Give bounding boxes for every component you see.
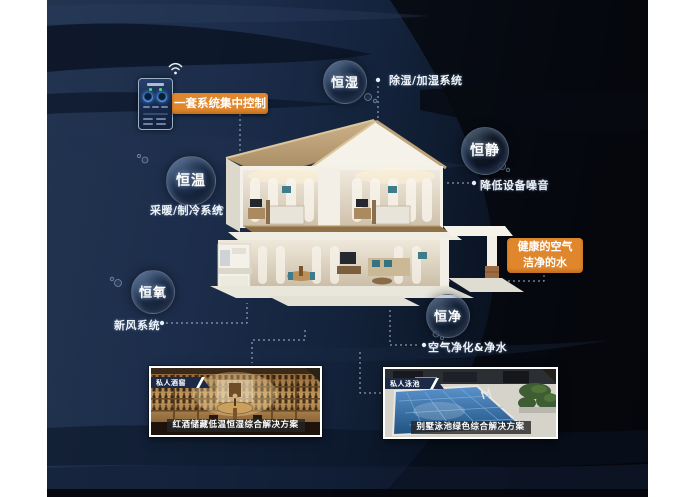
status-led [149,88,152,91]
bubble-purity-label: 恒净 [434,306,462,325]
house-porch [443,226,513,286]
house-floor-slab [228,226,462,240]
bubble-purity: 恒净 [426,294,470,338]
panel-title-bar [147,83,164,86]
panel-row [143,106,150,108]
panel-row [143,118,153,120]
panel-divider [143,113,168,115]
status-led [159,88,162,91]
infographic-stage: 一套系统集中控制 健康的空气 洁净的水 恒湿 恒静 恒温 恒氧 恒净 除湿/加湿… [0,0,700,497]
central-control-label: 一套系统集中控制 [174,96,266,110]
central-control-badge: 一套系统集中控制 [172,93,268,114]
dial-knob-left [143,92,153,102]
wine-card-caption: 红酒储藏低温恒湿综合解决方案 [166,419,304,432]
panel-row [152,106,159,108]
house-first-floor [218,238,449,290]
callout-purity: 空气净化&净水 [428,339,507,355]
callout-quiet: 降低设备噪音 [480,177,549,193]
bubble-quiet: 恒静 [461,127,509,175]
callout-humidity: 除湿/加湿系统 [389,72,463,88]
healthy-air-line1: 健康的空气 [507,239,583,255]
wifi-icon [167,61,184,76]
panel-row [143,123,153,125]
dial-knob-right [157,92,167,102]
panel-row [156,118,166,120]
pool-card: 私人泳池 别墅泳池绿色综合解决方案 [383,367,558,439]
bubble-humidity-label: 恒湿 [331,72,359,91]
callout-oxygen: 新风系统 [114,317,160,333]
panel-row [156,123,166,125]
bubble-oxygen: 恒氧 [131,270,175,314]
wine-cellar-card: 私人酒窖 红酒储藏低温恒湿综合解决方案 [149,366,322,437]
callout-temperature: 采暖/制冷系统 [150,202,224,218]
pool-card-caption: 别墅泳池绿色综合解决方案 [410,421,530,434]
bubble-temperature-label: 恒温 [176,170,206,190]
smart-control-panel [138,78,173,130]
bubble-humidity: 恒湿 [323,60,367,104]
bubble-quiet-label: 恒静 [470,140,500,160]
bubble-oxygen-label: 恒氧 [139,282,167,301]
bubble-temperature: 恒温 [166,156,216,206]
healthy-air-line2: 洁净的水 [507,255,583,271]
house-second-floor [226,158,443,232]
panel-row [161,106,168,108]
healthy-air-box: 健康的空气 洁净的水 [507,238,583,273]
